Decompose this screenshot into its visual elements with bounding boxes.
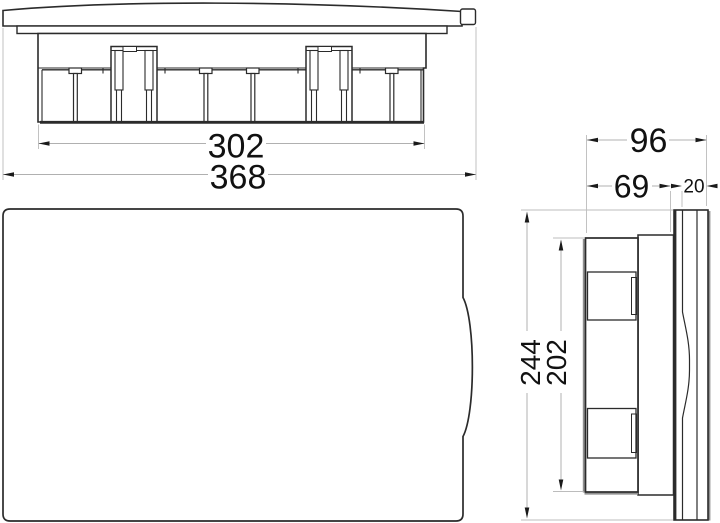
tower-leg-left-lower [312,90,317,122]
side-view [584,210,710,521]
arrowhead [707,184,718,189]
arrowhead [559,240,564,251]
arrowhead [525,508,530,519]
drawing-canvas: 302 368 96 69 20 244 202 [0,0,720,523]
tower-top-notch [318,47,332,52]
arrowhead [39,141,50,146]
post-cap [69,68,82,74]
tower-leg-right-lower [342,90,347,122]
arrowhead [587,184,598,189]
dim-label-69: 69 [614,169,650,205]
arrowhead [696,138,707,143]
post-cap [247,68,260,74]
enclosure-three-view-drawing: 302 368 96 69 20 244 202 [0,0,720,523]
top-view [3,3,476,122]
lid-outline [3,3,462,26]
post-stem [204,74,208,123]
side-knockout-lower [588,409,637,459]
arrowhead [660,184,671,189]
door-side-outline [674,210,708,520]
arrowhead [587,138,598,143]
tower-leg-right-lower [147,90,152,122]
mounting-flange [17,26,447,34]
tower-leg-left [310,51,318,91]
dim-label-202: 202 [541,339,572,386]
post-cap [386,68,399,74]
side-knockout-upper [588,272,637,320]
arrowhead [414,141,425,146]
front-view [3,209,472,521]
post-stem [251,74,255,123]
arrowhead [559,480,564,491]
arrowhead [3,172,14,177]
post-stem [390,74,394,123]
tower-leg-right [340,51,348,91]
dim-label-96: 96 [630,122,668,160]
arrowhead [671,184,682,189]
tower-leg-left [115,51,123,91]
din-clip-tower-left [111,47,157,123]
dim-label-368: 368 [210,159,267,197]
tower-leg-left-lower [117,90,122,122]
post-cap [200,68,213,74]
tower-leg-right [145,51,153,91]
lid-end-cap [461,9,476,25]
arrowhead [465,172,476,177]
box-front-rim [638,235,674,495]
body-outline [38,34,426,123]
din-clip-tower-right [306,47,352,123]
door-front-outline [3,209,472,521]
dim-label-20: 20 [683,177,704,198]
tower-top-notch [123,47,137,52]
post-stem [74,74,78,123]
arrowhead [525,212,530,223]
